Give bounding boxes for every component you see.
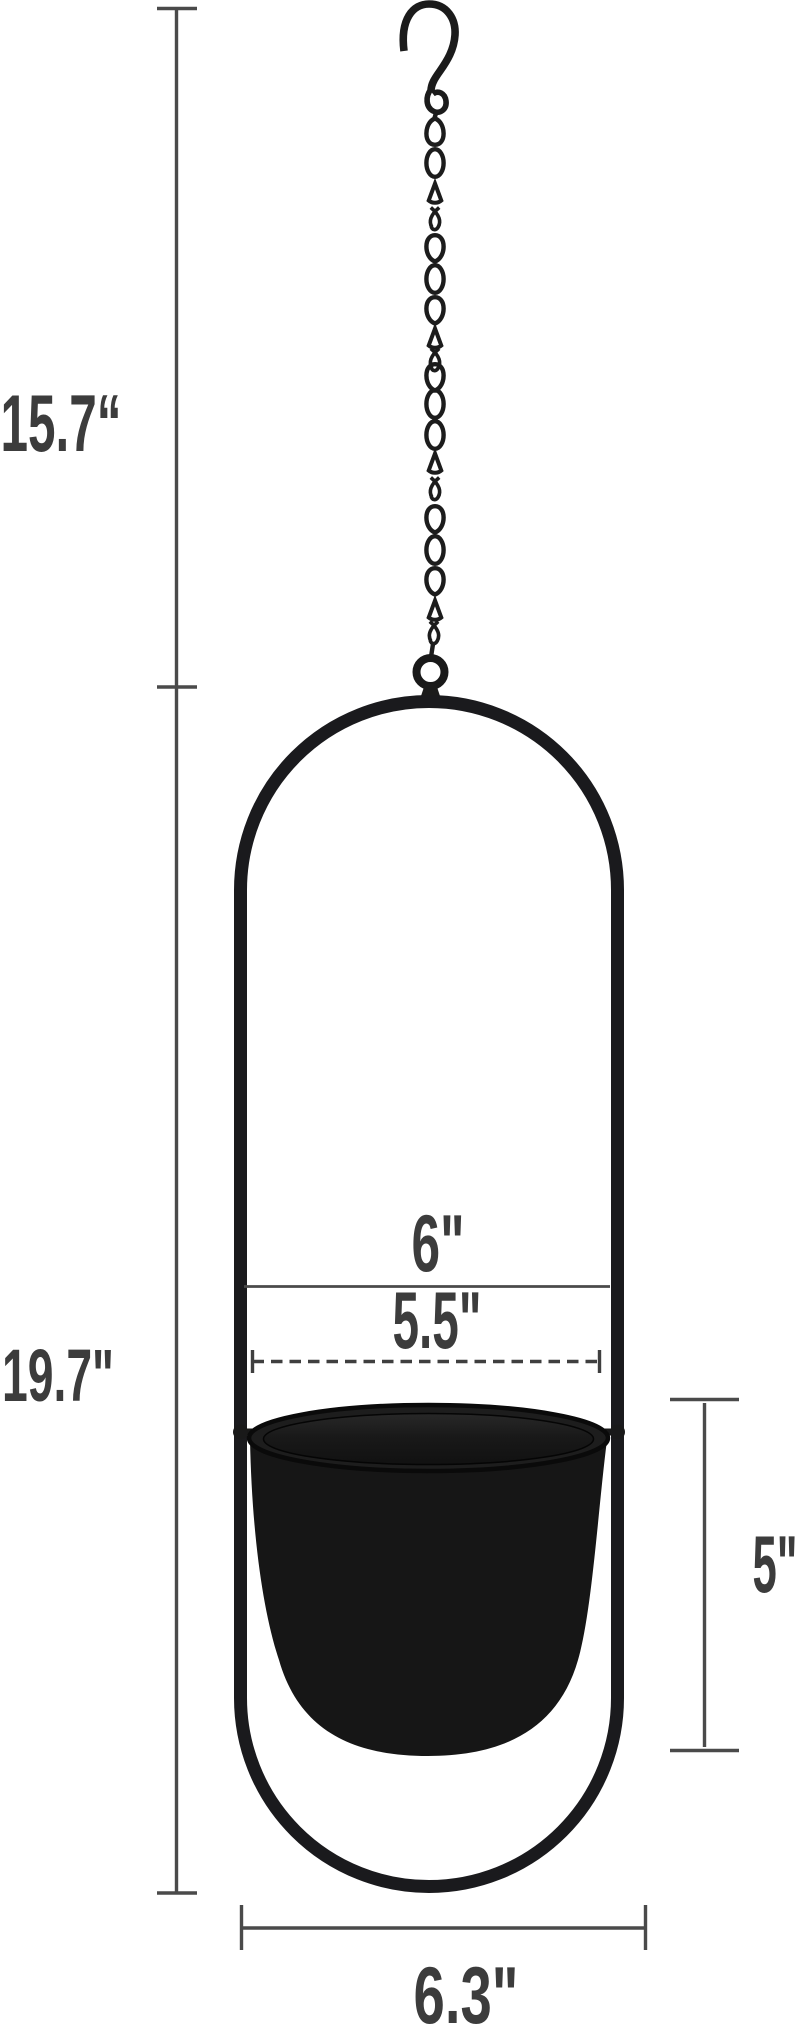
svg-text:6.3": 6.3": [414, 1951, 519, 2031]
svg-text:5.5": 5.5": [393, 1276, 482, 1366]
svg-text:5": 5": [753, 1520, 798, 1610]
svg-text:19.7": 19.7": [2, 1334, 114, 1417]
svg-text:15.7“: 15.7“: [1, 379, 122, 469]
